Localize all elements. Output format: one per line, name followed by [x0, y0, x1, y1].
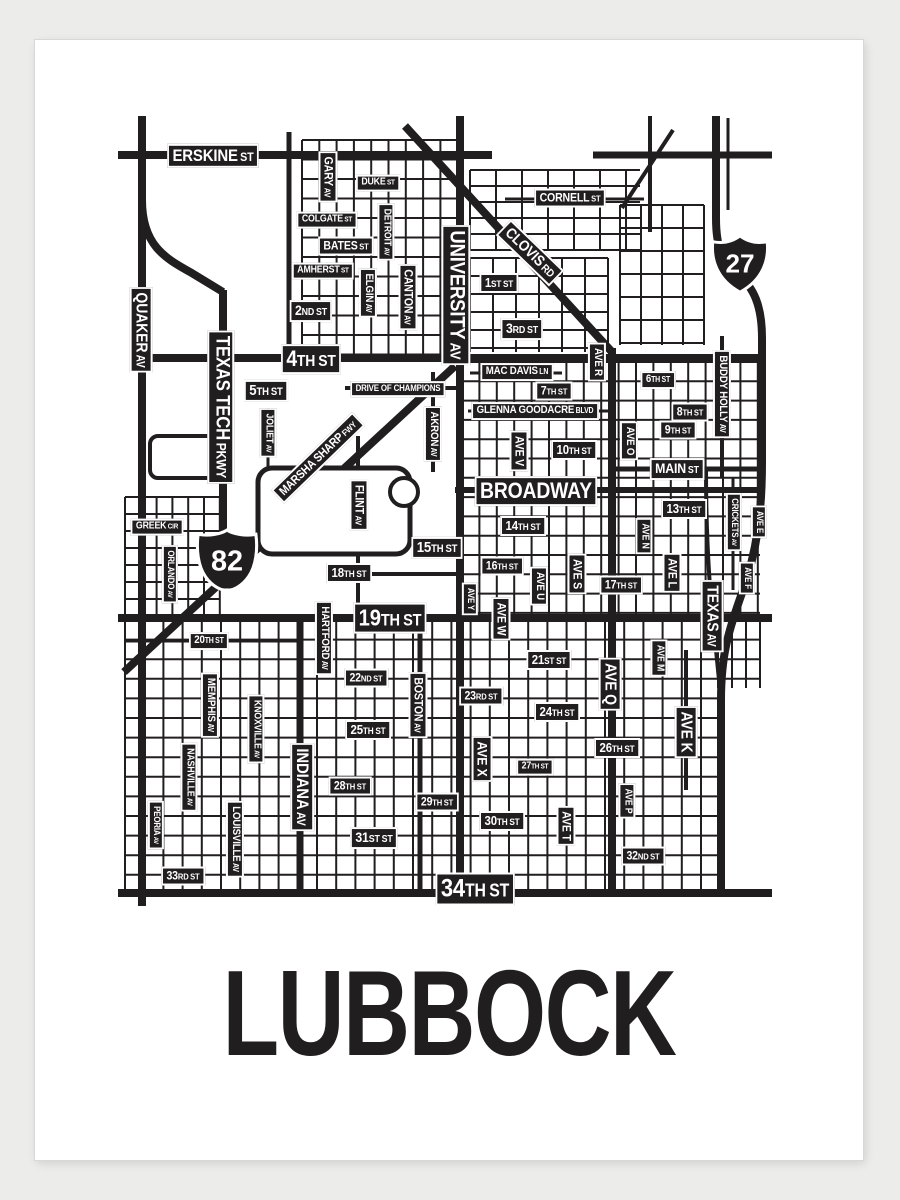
street-label-ave-t: AVE T — [557, 806, 576, 846]
street-label-3rd-st: 3RDST — [501, 318, 544, 340]
street-label-ave-w: AVE W — [492, 597, 511, 641]
street-label-duke-st: DUKEST — [356, 175, 400, 192]
street-label-10th-st: 10THST — [551, 440, 597, 460]
street-label-flint-av: FLINTAV — [350, 480, 369, 531]
street-label-ave-x: AVE X — [471, 736, 492, 782]
street-label-university-av: UNIVERSITYAV — [442, 225, 471, 365]
street-label-28th-st: 28THST — [329, 777, 372, 796]
street-label-26th-st: 26THST — [594, 738, 640, 758]
street-label-buddy-holly-av: BUDDY HOLLYAV — [713, 350, 731, 438]
street-label-memphis-av: MEMPHISAV — [201, 673, 219, 738]
street-label-34th-st: 34THST — [436, 873, 515, 906]
street-label-colgate-st: COLGATEST — [297, 212, 358, 229]
street-label-7th-st: 7THST — [535, 382, 572, 401]
street-label-31st-st: 31STST — [350, 827, 398, 849]
street-label-glenna-goodacre-blvd: GLENNA GOODACREBLVD — [471, 402, 598, 420]
street-label-louisville-av: LOUISVILLEAV — [226, 801, 244, 877]
street-label-drive-of-champions: DRIVE OF CHAMPIONS — [350, 381, 445, 397]
street-label-texas-av: TEXASAV — [700, 580, 723, 652]
street-label-25th-st: 25THST — [345, 720, 391, 740]
street-label-15th-st: 15THST — [411, 537, 462, 559]
street-label-13th-st: 13THST — [661, 499, 707, 519]
street-label-ave-m: AVE M — [651, 640, 668, 677]
street-label-ave-l: AVE L — [663, 553, 682, 593]
street-label-ave-q: AVE Q — [598, 658, 621, 710]
street-label-peoria-av: PEORIAAV — [148, 801, 164, 849]
street-label-boston-av: BOSTONAV — [409, 672, 428, 738]
street-label-joliet-av: JOLIETAV — [260, 408, 277, 458]
page-background: { "poster": { "title": "LUBBOCK" }, "col… — [0, 0, 900, 1200]
street-label-canton-av: CANTONAV — [399, 264, 418, 330]
street-label-akron-av: AKRONAV — [424, 406, 442, 462]
street-label-hartford-av: HARTFORDAV — [315, 601, 333, 675]
street-label-nashville-av: NASHVILLEAV — [181, 743, 198, 811]
street-label-ave-r: AVE R — [588, 343, 606, 382]
street-label-detroit-av: DETROITAV — [378, 203, 395, 260]
street-label-cornell-st: CORNELLST — [534, 189, 605, 208]
street-label-broadway: BROADWAY — [475, 476, 597, 506]
street-label-1st-st: 1STST — [480, 273, 519, 293]
interstate-27-shield: 27 — [709, 232, 771, 296]
street-label-21st-st: 21STST — [526, 650, 571, 670]
street-label-16th-st: 16THST — [481, 557, 524, 576]
street-label-18th-st: 18THST — [326, 563, 372, 583]
street-label-gary-av: GARYAV — [319, 151, 338, 202]
street-label-19th-st: 19THST — [353, 603, 426, 634]
street-label-ave-v: AVE V — [510, 431, 529, 472]
street-label-ave-o: AVE O — [620, 421, 638, 460]
street-label-bates-st: BATESST — [318, 237, 374, 256]
street-label-27th-st: 27THST — [516, 759, 553, 776]
street-label-14th-st: 14THST — [500, 516, 546, 536]
street-label-ave-s: AVE S — [568, 554, 587, 595]
street-label-8th-st: 8THST — [671, 403, 708, 422]
street-label-knoxville-av: KNOXVILLEAV — [248, 695, 265, 764]
street-label-indiana-av: INDIANAAV — [290, 743, 314, 831]
street-label-ave-n: AVE N — [636, 518, 653, 554]
street-label-ave-u: AVE U — [530, 567, 548, 606]
street-label-6th-st: 6THST — [641, 371, 676, 389]
street-label-29th-st: 29THST — [416, 793, 459, 812]
us-82-number: 82 — [211, 545, 243, 577]
us-82-shield: 82 — [192, 527, 262, 593]
street-label-30th-st: 30THST — [479, 811, 525, 831]
street-label-amherst-st: AMHERSTST — [292, 263, 354, 280]
street-label-2nd-st: 2NDST — [290, 300, 333, 322]
street-label-ave-y: AVE Y — [462, 583, 478, 616]
street-label-32nd-st: 32NDST — [621, 847, 665, 866]
street-label-ave-k: AVE K — [674, 706, 697, 758]
street-label-quaker-av: QUAKERAV — [129, 287, 152, 373]
street-label-22nd-st: 22NDST — [344, 669, 388, 688]
street-label-33rd-st: 33RDST — [161, 867, 205, 886]
street-label-main-st: MAINST — [650, 458, 704, 480]
street-label-texas-tech-pkwy: TEXAS TECHPKWY — [208, 331, 235, 484]
street-label-17th-st: 17THST — [600, 576, 643, 595]
street-label-ave-e: AVE E — [751, 506, 767, 539]
street-label-23rd-st: 23RDST — [459, 687, 503, 706]
interstate-27-number: 27 — [725, 249, 754, 279]
street-label-crickets-av: CRICKETSAV — [726, 493, 742, 551]
street-label-5th-st: 5THST — [244, 380, 288, 402]
street-label-20th-st: 20THST — [189, 632, 229, 650]
street-label-mac-davis-ln: MAC DAVISLN — [480, 363, 553, 381]
street-label-orlando-av: ORLANDOAV — [162, 545, 178, 603]
poster-title: LUBBOCK — [134, 952, 763, 1074]
street-label-4th-st: 4THST — [281, 344, 341, 374]
street-label-elgin-av: ELGINAV — [359, 268, 377, 318]
street-label-erskine-st: ERSKINEST — [167, 144, 259, 168]
street-label-24th-st: 24THST — [534, 702, 580, 722]
street-label-ave-p: AVE P — [619, 783, 636, 818]
street-label-greek-cir: GREEKCIR — [131, 519, 184, 536]
street-label-ave-f: AVE F — [739, 562, 755, 594]
street-label-9th-st: 9THST — [659, 421, 696, 440]
